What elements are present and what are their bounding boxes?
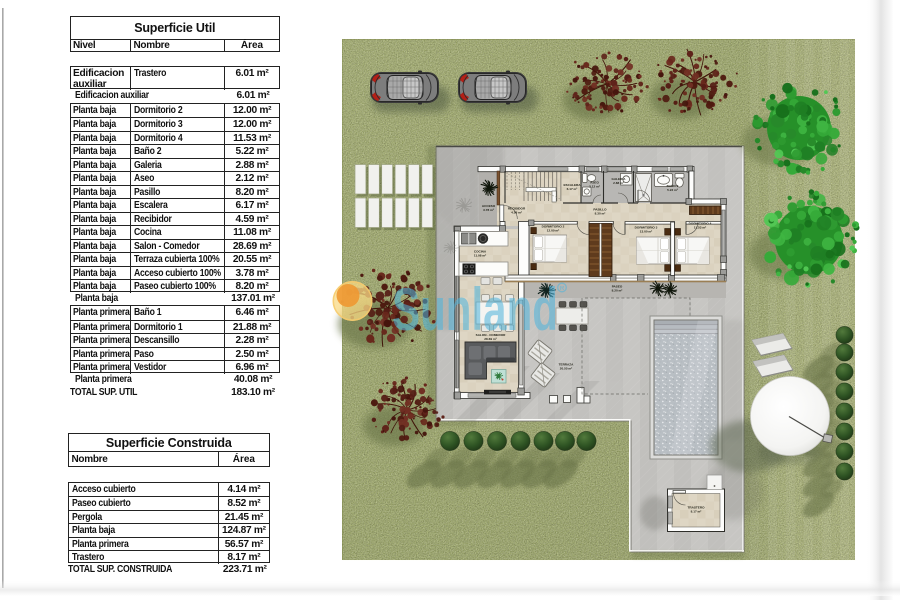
svg-text:20.55 m²: 20.55 m²: [560, 367, 572, 371]
svg-text:2.88 m²: 2.88 m²: [613, 181, 624, 185]
svg-text:13.00 m²: 13.00 m²: [640, 230, 652, 234]
svg-text:11.53 m²: 11.53 m²: [694, 226, 706, 230]
svg-text:8.20 m²: 8.20 m²: [612, 289, 623, 293]
svg-text:2.12 m²: 2.12 m²: [589, 185, 600, 189]
svg-text:11.08 m²: 11.08 m²: [474, 254, 486, 258]
svg-text:Sunland: Sunland: [392, 276, 558, 343]
svg-text:6.17 m²: 6.17 m²: [567, 187, 578, 191]
svg-text:R: R: [560, 286, 565, 292]
svg-text:3.78 m²: 3.78 m²: [483, 208, 494, 212]
svg-text:4.59 m²: 4.59 m²: [511, 211, 522, 215]
svg-text:8.30 m²: 8.30 m²: [595, 212, 606, 216]
svg-text:12.00 m²: 12.00 m²: [547, 229, 559, 233]
svg-text:5.22 m²: 5.22 m²: [667, 188, 678, 192]
svg-text:8.17 m²: 8.17 m²: [691, 510, 702, 514]
